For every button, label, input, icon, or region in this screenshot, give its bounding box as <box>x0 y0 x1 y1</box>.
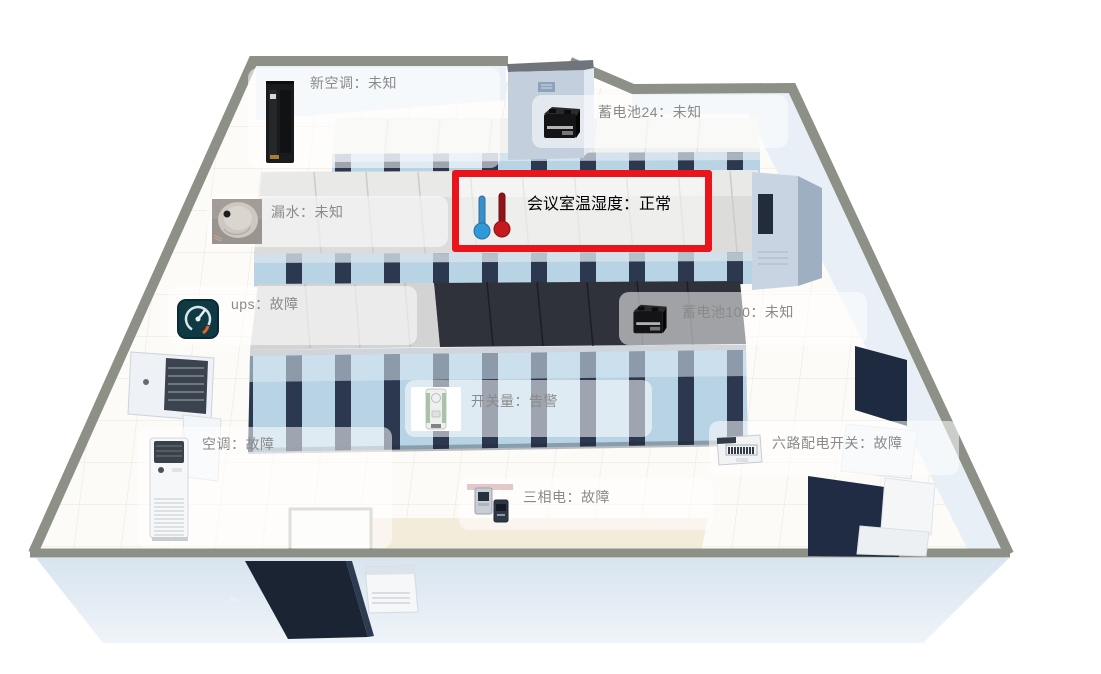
device-label-text: 空调：故障 <box>202 434 275 454</box>
switch-device-icon <box>411 387 461 431</box>
device-label-six-way-switch[interactable]: 六路配电开关：故障 <box>709 421 959 475</box>
device-label-text: 三相电：故障 <box>523 487 610 507</box>
device-label-meeting-room-th[interactable]: 会议室温湿度：正常 <box>452 170 712 252</box>
floor-ac-icon <box>148 437 190 543</box>
device-label-text: 新空调：未知 <box>310 73 397 93</box>
device-label-text: 蓄电池24：未知 <box>598 102 702 122</box>
device-label-air-conditioner[interactable]: 空调：故障 <box>138 427 392 548</box>
battery-icon <box>540 104 584 141</box>
server-cabinet-icon <box>266 81 296 165</box>
device-label-text: ups：故障 <box>231 294 299 314</box>
gauge-icon <box>177 299 219 339</box>
power-meter-icon <box>467 480 521 524</box>
device-label-water-leak[interactable]: 漏水：未知 <box>207 196 448 247</box>
device-label-battery-24[interactable]: 蓄电池24：未知 <box>532 95 788 148</box>
device-label-text: 会议室温湿度：正常 <box>527 190 671 214</box>
battery-icon <box>628 302 672 336</box>
device-label-battery-100[interactable]: 蓄电池100：未知 <box>619 292 867 345</box>
device-label-text: 蓄电池100：未知 <box>682 302 794 322</box>
device-label-text: 六路配电开关：故障 <box>772 433 903 453</box>
leak-sensor-icon <box>212 199 262 244</box>
device-label-three-phase[interactable]: 三相电：故障 <box>459 478 713 530</box>
device-label-ups[interactable]: ups：故障 <box>168 286 417 345</box>
front-wall <box>36 558 1009 643</box>
device-label-switch-signal[interactable]: 开关量：告警 <box>405 380 652 437</box>
device-label-new-ac[interactable]: 新空调：未知 <box>248 68 500 168</box>
wall-box <box>365 566 418 613</box>
distribution-box-icon <box>716 432 763 468</box>
thermometer-icon <box>473 192 513 245</box>
machine-room-3d-view[interactable]: 新空调：未知 蓄电池24：未知 会议室温 <box>0 0 1101 674</box>
device-label-text: 开关量：告警 <box>471 391 558 411</box>
device-label-text: 漏水：未知 <box>271 202 344 222</box>
standing-ac-unit <box>752 172 822 290</box>
